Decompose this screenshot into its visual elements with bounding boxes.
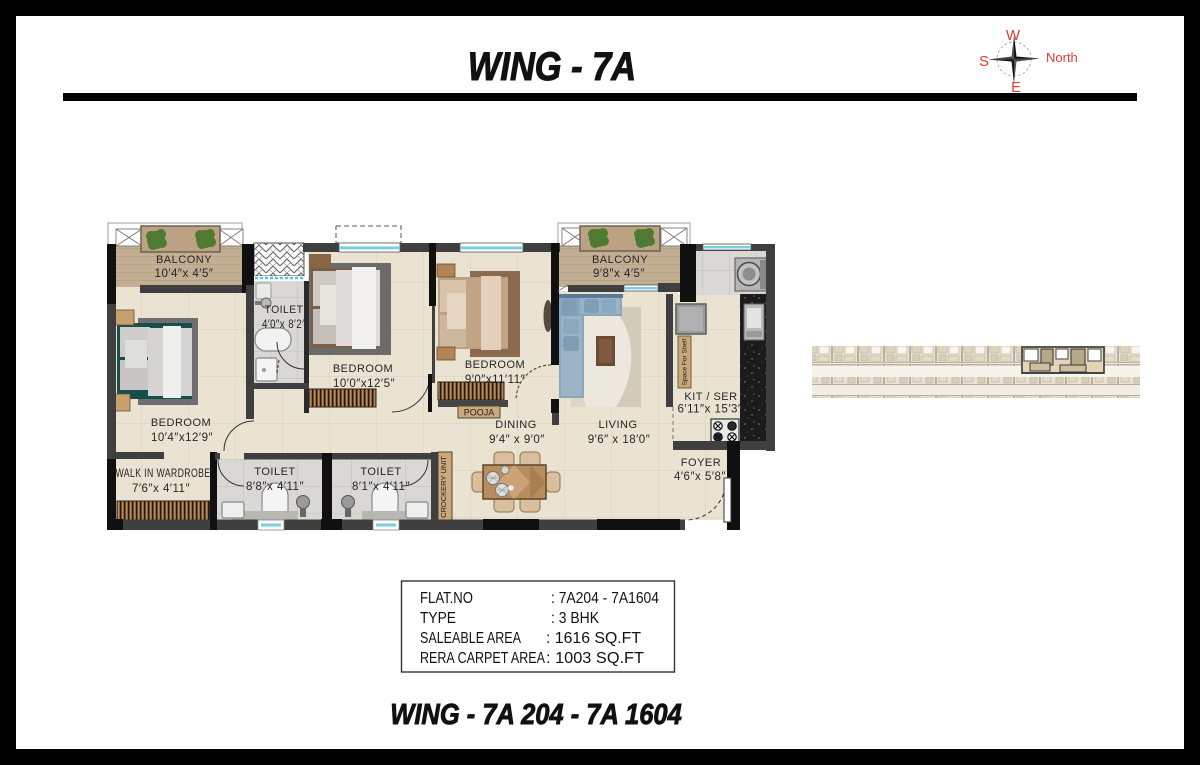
svg-text:RERA CARPET AREA: RERA CARPET AREA [420,650,546,667]
svg-text:TOILET: TOILET [265,304,304,316]
svg-text:Space For Shelf: Space For Shelf [682,339,689,386]
svg-text:BEDROOM: BEDROOM [465,359,525,371]
svg-text:7′6″x 4′11″: 7′6″x 4′11″ [132,483,190,495]
svg-text:KIT / SER: KIT / SER [684,391,737,403]
svg-text:TOILET: TOILET [254,466,295,478]
svg-text:4′0″x 8′2″: 4′0″x 8′2″ [262,319,306,331]
svg-text:: 1003 SQ.FT: : 1003 SQ.FT [546,650,645,667]
svg-text:6′11″x 15′3″: 6′11″x 15′3″ [678,404,743,416]
svg-text:SALEABLE AREA: SALEABLE AREA [420,630,522,647]
svg-text:E: E [1011,80,1021,96]
svg-text:10′4″x12′9″: 10′4″x12′9″ [151,432,213,444]
svg-text:WING - 7A 204 - 7A 1604: WING - 7A 204 - 7A 1604 [390,697,682,730]
svg-text:: 7A204 - 7A1604: : 7A204 - 7A1604 [551,590,659,607]
svg-text:4′6″x 5′8″: 4′6″x 5′8″ [674,471,726,483]
svg-text:W: W [1006,27,1021,44]
svg-text:BALCONY: BALCONY [592,254,648,266]
svg-text:BEDROOM: BEDROOM [333,363,393,375]
svg-text:LIVING: LIVING [598,419,637,431]
svg-text:BALCONY: BALCONY [156,254,212,266]
svg-text:8′1″x 4′11″: 8′1″x 4′11″ [352,481,410,493]
svg-text:FOYER: FOYER [681,457,721,469]
svg-text:BEDROOM: BEDROOM [151,417,211,429]
svg-text:WALK IN WARDROBE: WALK IN WARDROBE [116,466,211,480]
svg-text:: 1616 SQ.FT: : 1616 SQ.FT [546,630,642,647]
svg-text:S: S [979,53,989,70]
svg-text:10′0″x12′5″: 10′0″x12′5″ [333,378,395,390]
svg-text:: 3 BHK: : 3 BHK [551,610,600,627]
svg-text:POOJA: POOJA [464,408,495,418]
svg-text:CROCKERY UNIT: CROCKERY UNIT [439,456,448,518]
svg-text:9′6″ x 18′0″: 9′6″ x 18′0″ [588,434,651,446]
svg-text:WING - 7A: WING - 7A [468,44,636,89]
svg-text:DINING: DINING [495,419,537,431]
svg-text:North: North [1046,50,1078,65]
svg-text:10′4″x 4′5″: 10′4″x 4′5″ [155,268,214,280]
svg-text:9′0″x11′11″: 9′0″x11′11″ [465,374,525,386]
svg-text:FLAT.NO: FLAT.NO [420,590,473,607]
svg-text:8′8″x 4′11″: 8′8″x 4′11″ [246,481,304,493]
svg-text:TOILET: TOILET [360,466,401,478]
svg-text:9′4″ x 9′0″: 9′4″ x 9′0″ [489,434,545,446]
svg-text:TYPE: TYPE [420,610,456,627]
svg-text:9′8″x 4′5″: 9′8″x 4′5″ [593,268,645,280]
